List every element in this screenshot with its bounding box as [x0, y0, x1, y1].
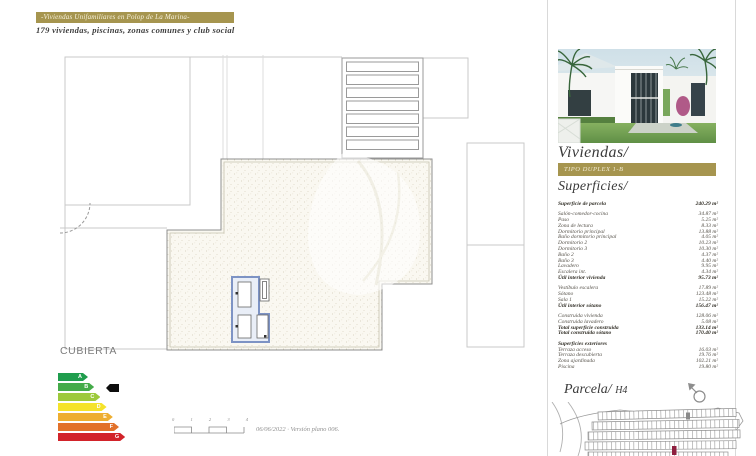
surface-value: 170.40 m²: [696, 331, 718, 337]
pergola-louvers: [342, 58, 423, 158]
surfaces-row: Total construida sótano170.40 m²: [558, 331, 718, 337]
site-map-dark-cell: [686, 413, 690, 420]
surface-value: 19.80 m²: [699, 365, 718, 371]
surfaces-section: Superficies exterioresTerraza acceso16.0…: [558, 342, 718, 371]
surface-value: 95.73 m²: [698, 276, 718, 282]
surface-label: Total construida sótano: [558, 331, 611, 337]
plan-version-note: 06/06/2022 · Versión plano 006.: [256, 426, 339, 433]
site-roads: [552, 402, 581, 456]
highlighted-parcel: [672, 446, 677, 455]
page-right-border: [735, 0, 736, 456]
surface-value: 156.47 m²: [696, 304, 718, 310]
surface-label: Superficie de parcela: [558, 202, 606, 208]
surface-value: 240.29 m²: [696, 202, 718, 208]
roof-plan-drawing: [58, 53, 533, 358]
energy-bar-a: A: [58, 373, 88, 381]
project-subtitle: 179 viviendas, piscinas, zonas comunes y…: [36, 25, 235, 35]
fence-lattice: [558, 119, 580, 143]
energy-bar-c: C: [58, 393, 100, 401]
parcel-strips: [585, 408, 740, 456]
surfaces-section: Superficie de parcela240.29 m²: [558, 202, 718, 208]
party-wall-lines: [223, 55, 263, 159]
parcel-title: Parcela/ H4: [564, 382, 627, 398]
surfaces-table: Superficie de parcela240.29 m²Salón-come…: [558, 202, 718, 371]
plan-sheet-page: -Viviendas Unifamiliares en Polop de La …: [0, 0, 756, 456]
surfaces-row: Útil interior vivienda95.73 m²: [558, 276, 718, 282]
sidebar-divider: [547, 0, 548, 456]
scale-tick-label: 4: [246, 417, 248, 422]
parcel-title-text: Parcela/: [564, 382, 612, 397]
homes-section-title: Viviendas/: [558, 144, 628, 162]
surfaces-section: Vestíbulo escalera17.89 m²Sótano123.48 m…: [558, 286, 718, 309]
scale-tick-label: 0: [172, 417, 174, 422]
energy-bar-f: F: [58, 423, 119, 431]
site-map: [548, 402, 748, 456]
surfaces-row: Útil interior sótano156.47 m²: [558, 304, 718, 310]
energy-bar-g: G: [58, 433, 125, 441]
scale-tick-label: 3: [227, 417, 229, 422]
energy-bar-e: E: [58, 413, 113, 421]
scale-tick-label: 1: [190, 417, 192, 422]
surface-label: Piscina: [558, 365, 575, 371]
north-arrow-icon: [687, 382, 707, 404]
scale-bar: [174, 424, 250, 434]
energy-bar-b: B: [58, 383, 94, 391]
energy-bar-d: D: [58, 403, 107, 411]
surface-label: Útil interior vivienda: [558, 276, 605, 282]
home-type-banner: TIPO DUPLEX 1-B: [558, 163, 716, 176]
surfaces-row: Piscina19.80 m²: [558, 365, 718, 371]
surfaces-section: Construida vivienda128.06 m²Construida l…: [558, 314, 718, 337]
surface-label: Útil interior sótano: [558, 304, 601, 310]
energy-label: ABCDEFG: [58, 373, 125, 443]
surfaces-row: Superficie de parcela240.29 m²: [558, 202, 718, 208]
villa-render-photo: [558, 49, 716, 143]
scale-ticks: 01234: [172, 417, 248, 422]
project-title-banner: -Viviendas Unifamiliares en Polop de La …: [36, 12, 234, 23]
parcel-code: H4: [615, 385, 627, 396]
scale-tick-label: 2: [209, 417, 211, 422]
surfaces-section: Salón-comedor-cocina34.87 m²Paso5.25 m²Z…: [558, 212, 718, 282]
surfaces-section-title: Superficies/: [558, 179, 628, 195]
plan-title: CUBIERTA: [60, 345, 117, 357]
